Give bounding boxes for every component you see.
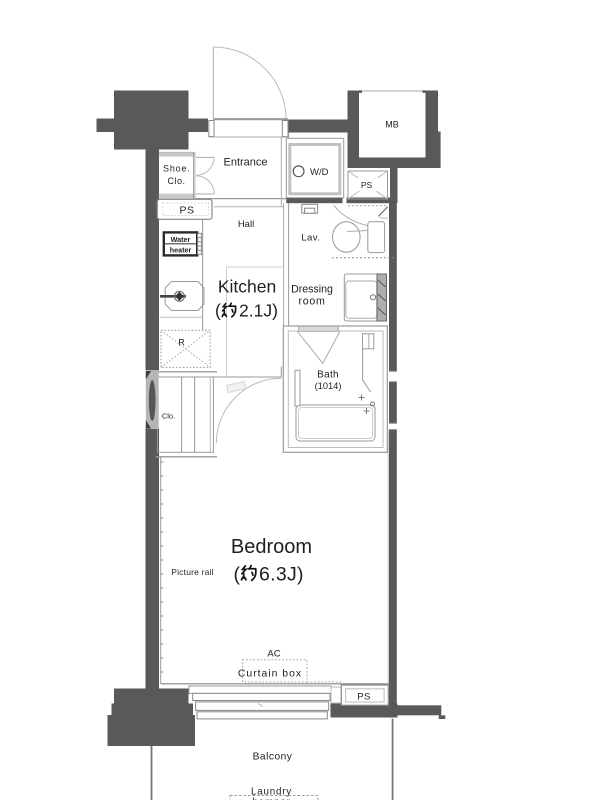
svg-text:(1014): (1014)	[315, 381, 342, 391]
svg-text:Lav.: Lav.	[301, 233, 320, 244]
svg-text:2.1J): 2.1J)	[239, 301, 278, 321]
svg-text:Bath: Bath	[317, 370, 339, 381]
svg-text:heater: heater	[170, 246, 192, 255]
svg-text:Clo.: Clo.	[167, 176, 185, 186]
svg-text:6.3J): 6.3J)	[259, 564, 304, 586]
svg-text:Entrance: Entrance	[223, 157, 267, 169]
svg-text:PS: PS	[361, 180, 373, 190]
svg-text:PS: PS	[357, 692, 370, 703]
svg-text:Shoe.: Shoe.	[163, 164, 191, 174]
svg-text:Water: Water	[171, 235, 191, 244]
svg-text:Hall: Hall	[238, 219, 254, 230]
svg-text:(: (	[234, 564, 241, 586]
svg-text:Kitchen: Kitchen	[218, 277, 276, 297]
svg-text:R: R	[178, 338, 185, 348]
svg-text:PS: PS	[179, 204, 194, 216]
svg-text:Bedroom: Bedroom	[231, 536, 312, 558]
svg-text:room: room	[299, 296, 326, 308]
svg-text:Picture rail: Picture rail	[171, 567, 214, 577]
svg-text:W/D: W/D	[310, 167, 329, 178]
svg-text:MB: MB	[385, 120, 399, 130]
svg-text:Curtain box: Curtain box	[238, 668, 302, 679]
svg-text:Dressing: Dressing	[291, 284, 333, 296]
svg-text:Balcony: Balcony	[253, 752, 293, 763]
svg-text:Clo.: Clo.	[162, 412, 175, 421]
svg-text:(: (	[215, 301, 221, 321]
svg-text:AC: AC	[267, 648, 280, 659]
